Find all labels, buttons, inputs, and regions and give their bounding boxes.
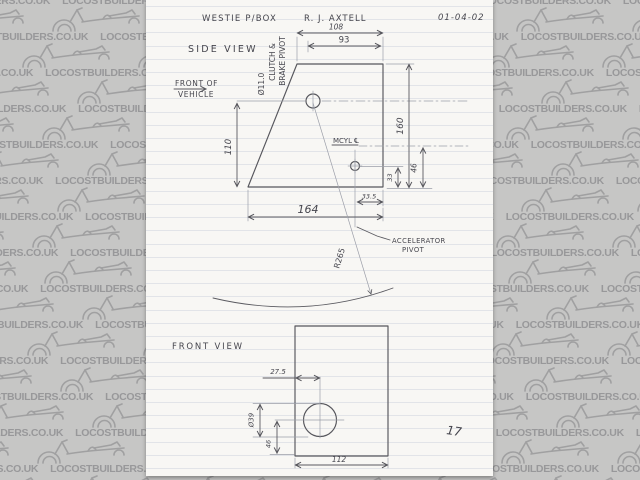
watermark-logo [0,475,45,480]
dim-93: 93 [339,36,350,46]
watermark-logo [550,403,640,429]
front-of-vehicle-label2: VEHICLE [178,90,214,99]
watermark-logo [0,79,55,105]
watermark-logo [0,403,70,429]
pedal-swing-arc [213,288,393,307]
pivot-label-line1: CLUTCH & [268,43,277,81]
drawing-svg: WESTIE P/BOX R. J. AXTELL 01-04-02 SIDE … [146,0,493,476]
watermark-logo [21,331,121,357]
watermark-text: LOCOSTBUILDERS.CO.UK [0,103,66,115]
watermark-logo [515,187,615,213]
watermark-text: LOCOSTBUILDERS.CO.UK [0,139,98,151]
watermark-text: LOCOSTBUILDERS.CO.UK [481,355,609,367]
side-view-outline [248,64,383,187]
watermark-logo [0,259,22,285]
watermark-text: LOCOSTBUILDERS.CO.UK [491,247,619,259]
accelerator-leader [357,227,390,240]
front-view: FRONT VIEW 27.5 Ø39 46 [172,326,388,468]
dim-27-5: 27.5 [270,368,286,376]
side-view-label: SIDE VIEW [188,44,258,55]
watermark-logo [46,7,146,33]
watermark-logo [518,367,618,393]
watermark-logo [31,439,131,465]
dim-33: 33 [386,173,394,181]
dim-46-front: 46 [265,440,273,448]
pivot-label-line2: BRAKE PIVOT [278,36,287,86]
watermark-text: LOCOSTBUILDERS.CO.UK [623,0,640,7]
front-of-vehicle-label: FRONT OF [175,79,218,88]
watermark-logo [525,475,625,480]
front-view-label: FRONT VIEW [172,342,244,352]
watermark-logo [611,439,640,465]
watermark-logo [502,259,602,285]
watermark-text: LOCOSTBUILDERS.CO.UK [0,463,38,475]
watermark-text: LOCOSTBUILDERS.CO.UK [601,283,640,295]
dim-160: 160 [396,117,406,134]
watermark-text: LOCOSTBUILDERS.CO.UK [0,427,63,439]
watermark-logo [545,151,640,177]
paper: WESTIE P/BOX R. J. AXTELL 01-04-02 SIDE … [146,0,493,476]
watermark-text: LOCOSTBUILDERS.CO.UK [0,247,58,259]
watermark-text: LOCOSTBUILDERS.CO.UK [606,67,640,79]
dim-33-5: 33.5 [362,193,376,201]
watermark-logo [485,331,585,357]
dim-dia39: Ø39 [248,412,256,428]
watermark-text: LOCOSTBUILDERS.CO.UK [0,355,48,367]
watermark-logo [26,223,126,249]
watermark-logo [480,43,580,69]
watermark-logo [510,7,610,33]
watermark-logo [634,367,640,393]
watermark-text: LOCOSTBUILDERS.CO.UK [526,391,640,403]
watermark-text: LOCOSTBUILDERS.CO.UK [483,0,611,7]
watermark-logo [0,331,5,357]
watermark-logo [0,7,30,33]
watermark-text: LOCOSTBUILDERS.CO.UK [0,67,33,79]
watermark-text: LOCOSTBUILDERS.CO.UK [636,427,640,439]
pivot-diameter-label: Ø11.0 [257,72,266,95]
watermark-text: LOCOSTBUILDERS.CO.UK [616,175,640,187]
page-number: 17 [446,423,463,439]
radius-label: R265 [332,247,347,270]
watermark-text: LOCOSTBUILDERS.CO.UK [516,319,640,331]
watermark-logo [0,151,65,177]
watermark-logo [596,43,640,69]
dim-46: 46 [410,163,419,173]
watermark-text: LOCOSTBUILDERS.CO.UK [496,427,624,439]
watermark-logo [606,223,640,249]
watermark-text: LOCOSTBUILDERS.CO.UK [0,175,43,187]
watermark-logo [601,331,640,357]
watermark-logo [616,115,640,141]
watermark-logo [0,367,38,393]
watermark-text: LOCOSTBUILDERS.CO.UK [0,31,88,43]
watermark-logo [38,259,138,285]
watermark-logo [631,187,640,213]
front-view-outline [295,326,388,456]
watermark-text: LOCOSTBUILDERS.CO.UK [611,463,640,475]
watermark-logo [0,223,10,249]
watermark-text: LOCOSTBUILDERS.CO.UK [521,31,640,43]
watermark-logo [540,295,640,321]
drawing-title: WESTIE P/BOX [202,14,277,24]
watermark-text: LOCOSTBUILDERS.CO.UK [0,283,28,295]
watermark-logo [54,367,154,393]
watermark-logo [36,115,136,141]
watermark-logo [0,187,35,213]
dim-112: 112 [332,455,347,464]
watermark-text: LOCOSTBUILDERS.CO.UK [631,247,640,259]
mcyl-label: MCYL ℄ [333,137,359,145]
watermark-logo [0,115,20,141]
watermark-text: LOCOSTBUILDERS.CO.UK [0,211,73,223]
side-view: SIDE VIEW FRONT OF VEHICLE Ø11.0 CLUTCH … [174,23,470,307]
watermark-text: LOCOSTBUILDERS.CO.UK [499,103,627,115]
watermark-logo [0,439,15,465]
watermark-text: LOCOSTBUILDERS.CO.UK [0,0,50,7]
watermark-logo [51,187,151,213]
watermark-logo [0,295,60,321]
watermark-logo [535,79,635,105]
watermark-text: LOCOSTBUILDERS.CO.UK [476,175,604,187]
dim-110: 110 [224,139,234,155]
watermark-logo [490,223,590,249]
watermark-logo [16,43,116,69]
watermark-text: LOCOSTBUILDERS.CO.UK [531,139,640,151]
watermark-logo [500,115,600,141]
drawing-date: 01-04-02 [438,13,485,23]
watermark-text: LOCOSTBUILDERS.CO.UK [0,391,93,403]
watermark-text: LOCOSTBUILDERS.CO.UK [506,211,634,223]
watermark-logo [618,259,640,285]
accelerator-label-line1: ACCELERATOR [392,237,446,245]
watermark-logo [495,439,595,465]
dim-108: 108 [329,23,344,32]
scanned-drawing-page: LOCOSTBUILDERS.CO.UKLOCOSTBUILDERS.CO.UK… [0,0,640,480]
watermark-text: LOCOSTBUILDERS.CO.UK [621,355,640,367]
watermark-logo [626,7,640,33]
accelerator-label-line2: PIVOT [402,246,425,254]
dim-164: 164 [298,203,319,216]
watermark-text: LOCOSTBUILDERS.CO.UK [0,319,83,331]
